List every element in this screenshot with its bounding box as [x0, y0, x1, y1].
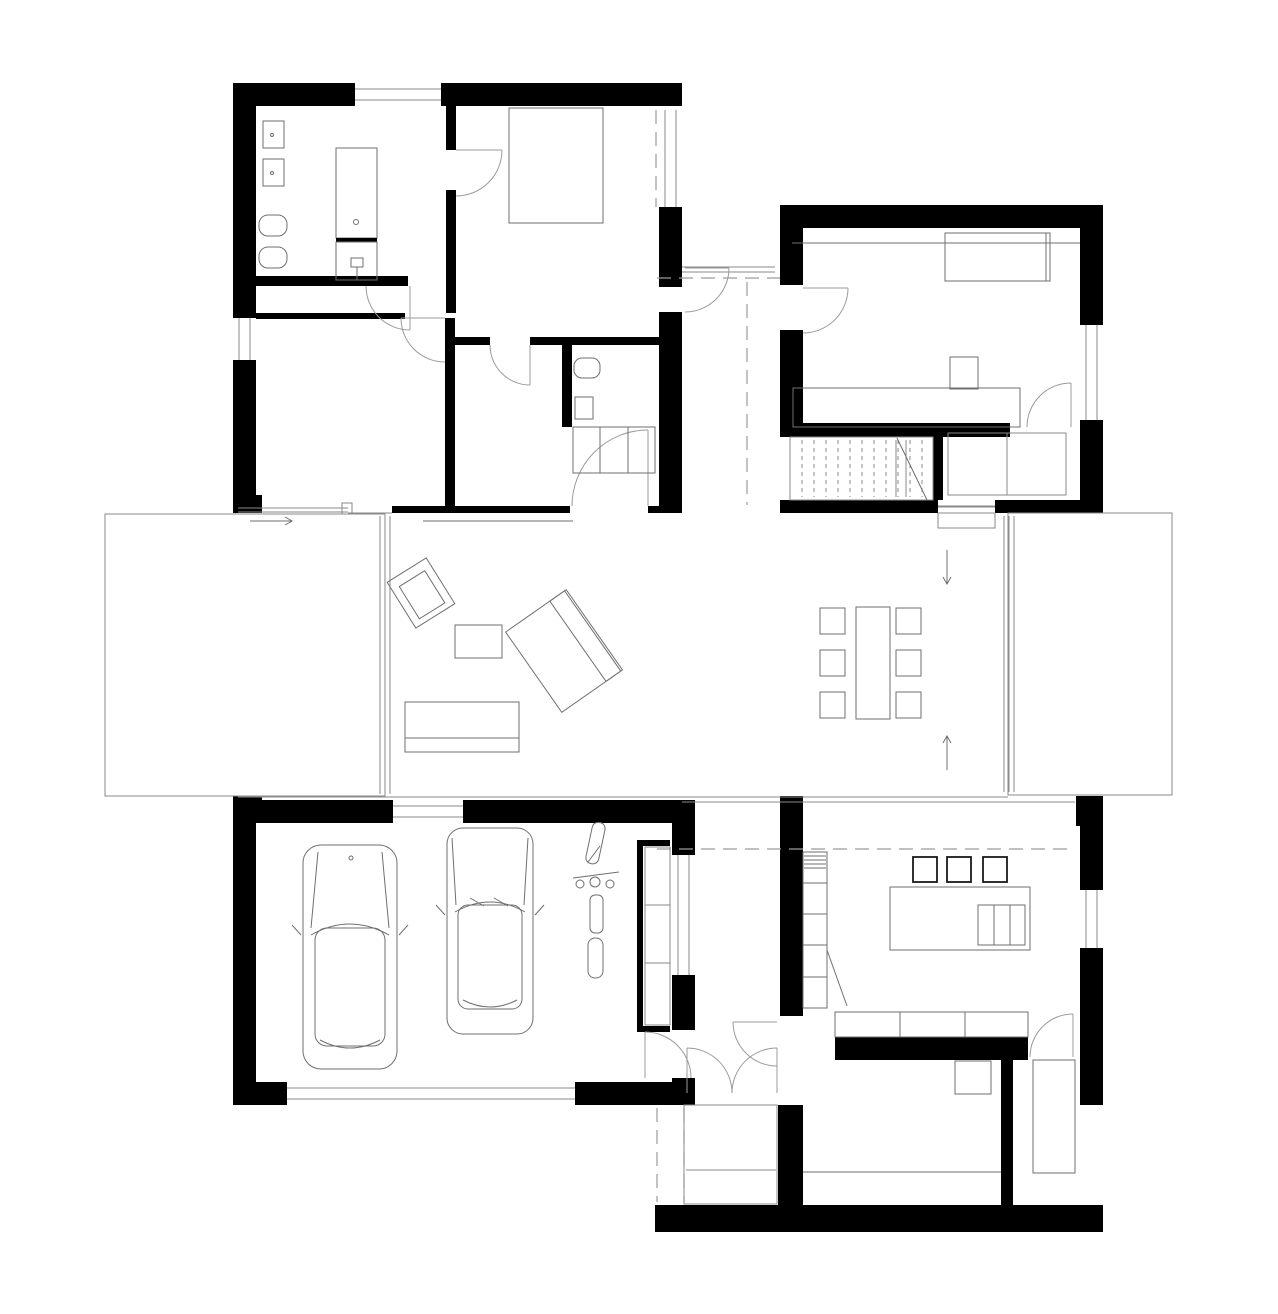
car-roof: [458, 905, 522, 1009]
interior-wall: [530, 337, 659, 345]
exterior-wall: [575, 1082, 695, 1105]
porch: [684, 1105, 777, 1204]
door-arc: [645, 1032, 691, 1078]
car-emblem: [349, 856, 353, 860]
window: [1080, 325, 1103, 420]
interior-wall: [256, 313, 405, 319]
car-hood-line: [311, 852, 318, 928]
car-mirror: [292, 925, 301, 935]
toilet: [259, 247, 287, 268]
toilet: [574, 358, 600, 378]
window: [672, 855, 695, 975]
exterior-wall: [1080, 228, 1103, 325]
door-arc: [572, 430, 648, 506]
bar-stool: [913, 857, 937, 882]
exterior-wall: [780, 228, 803, 285]
sideboard: [405, 702, 519, 752]
interior-wall: [780, 423, 1010, 437]
door-arc: [456, 150, 502, 196]
floor-plan-svg: [0, 0, 1278, 1314]
bed: [509, 108, 603, 223]
motorcycle-headlight: [590, 877, 600, 887]
kitchen-tall-cabinets: [803, 852, 827, 1008]
exterior-wall: [233, 360, 256, 513]
car-mirror: [535, 905, 544, 915]
window: [355, 83, 441, 106]
exterior-wall: [233, 1082, 287, 1105]
entry-door-arc: [732, 1048, 777, 1093]
terrace: [105, 514, 385, 796]
tub-tap: [354, 220, 359, 225]
exterior-wall: [233, 823, 256, 1105]
rear-step: [938, 513, 995, 528]
interior-wall: [672, 823, 695, 855]
dining-chair: [896, 608, 921, 634]
window: [393, 800, 463, 823]
window: [233, 318, 256, 360]
garage-door: [287, 1082, 575, 1105]
garage-door-gap: [287, 1082, 575, 1105]
window-gap: [1080, 325, 1103, 420]
shower-head: [351, 258, 363, 267]
desk: [793, 388, 1020, 427]
dining-chair: [896, 650, 921, 676]
interior-wall: [672, 975, 695, 1030]
desk-chair: [950, 357, 978, 389]
car-rear-window: [463, 1000, 517, 1007]
shower-partition: [336, 238, 377, 242]
exterior-wall: [233, 106, 256, 320]
kitchen-island: [890, 887, 1030, 950]
interior-wall: [778, 1105, 803, 1205]
car-windshield: [311, 924, 389, 935]
dining-chair: [820, 650, 845, 676]
car-rear-window: [320, 1040, 380, 1048]
interior-wall: [256, 276, 408, 286]
exterior-wall: [441, 83, 682, 106]
dining-table: [856, 607, 890, 719]
built-in-closet: [645, 847, 670, 1025]
car-hood-line: [452, 838, 456, 905]
motorcycle-body: [590, 895, 603, 933]
exterior-wall: [233, 800, 393, 823]
sofa-back: [550, 591, 621, 682]
interior-wall: [445, 318, 455, 506]
toilet: [259, 215, 287, 236]
car-body: [303, 845, 397, 1069]
door-arc: [803, 288, 848, 333]
interior-wall: [780, 500, 933, 513]
floor-plan-canvas: [0, 0, 1278, 1314]
coffee-table: [455, 625, 502, 658]
floor-plan-page: [0, 0, 1278, 1314]
island-sink: [978, 905, 1025, 945]
car-windshield: [455, 902, 525, 912]
door-arc: [733, 1022, 777, 1066]
motorcycle-control: [576, 880, 584, 888]
exterior-wall: [780, 205, 1103, 228]
door-arc: [1027, 383, 1071, 427]
closet-wall: [637, 840, 643, 1032]
dining-chair: [896, 692, 921, 718]
car-hood-line: [524, 838, 528, 905]
door-arc: [366, 286, 410, 330]
window-gap: [659, 110, 682, 207]
door-arc: [685, 268, 729, 312]
window-gap: [393, 800, 463, 823]
exterior-wall: [233, 83, 355, 106]
exterior-wall: [1080, 948, 1103, 1105]
hall-closet: [573, 427, 655, 473]
terrace: [1008, 513, 1172, 795]
car-mirror: [436, 905, 445, 915]
pantry-counter: [1033, 1060, 1075, 1173]
exterior-wall: [463, 800, 695, 823]
dining-chair: [820, 608, 845, 634]
exterior-wall: [780, 330, 803, 423]
kitchen-counter: [835, 1012, 1028, 1037]
interior-wall: [562, 345, 572, 427]
interior-wall: [780, 796, 803, 1016]
sink-drain: [271, 134, 274, 137]
car-hood-line: [382, 852, 389, 928]
exterior-wall: [1080, 420, 1103, 513]
interior-wall: [835, 1037, 1028, 1060]
interior-wall: [446, 106, 456, 150]
door-arc: [401, 318, 445, 362]
window-gap: [355, 83, 441, 106]
window-gap: [233, 318, 256, 360]
exterior-wall: [659, 312, 682, 513]
interior-wall: [648, 506, 682, 513]
window-gap: [1080, 890, 1103, 948]
motorcycle-front-wheel: [585, 821, 606, 865]
exterior-wall: [655, 1205, 1103, 1232]
rear-door: [938, 500, 995, 513]
dining-chair: [820, 692, 845, 718]
motorcycle-rear-wheel: [588, 938, 603, 978]
exterior-wall: [659, 207, 682, 287]
wc-sink: [575, 397, 593, 419]
interior-wall: [1001, 1060, 1013, 1205]
stair-break-line: [897, 438, 927, 500]
motorcycle-control: [606, 880, 614, 888]
closet-wall: [637, 840, 670, 846]
interior-wall: [453, 337, 490, 345]
armchair-seat: [399, 571, 445, 619]
exterior-wall: [1076, 796, 1103, 826]
sofa: [506, 590, 623, 713]
door-arc: [490, 345, 530, 385]
car-body: [447, 828, 533, 1034]
utility-table: [955, 1061, 991, 1094]
exterior-wall: [993, 500, 1103, 513]
office-cabinet: [945, 233, 1050, 281]
window: [1080, 890, 1103, 948]
bar-stool: [983, 857, 1007, 882]
window-gap: [672, 855, 695, 975]
interior-wall: [446, 190, 456, 313]
exterior-wall: [233, 495, 262, 513]
sink-drain: [271, 172, 274, 175]
door-arc: [1030, 1014, 1073, 1057]
interior-wall: [392, 506, 570, 513]
car-mirror: [399, 925, 408, 935]
window: [659, 110, 682, 207]
car-roof: [315, 928, 385, 1046]
bar-stool: [947, 857, 971, 882]
cabinet-open-door: [827, 950, 847, 1006]
closet-wall: [637, 1026, 670, 1032]
exterior-wall: [1080, 826, 1103, 890]
interior-wall: [933, 423, 943, 513]
